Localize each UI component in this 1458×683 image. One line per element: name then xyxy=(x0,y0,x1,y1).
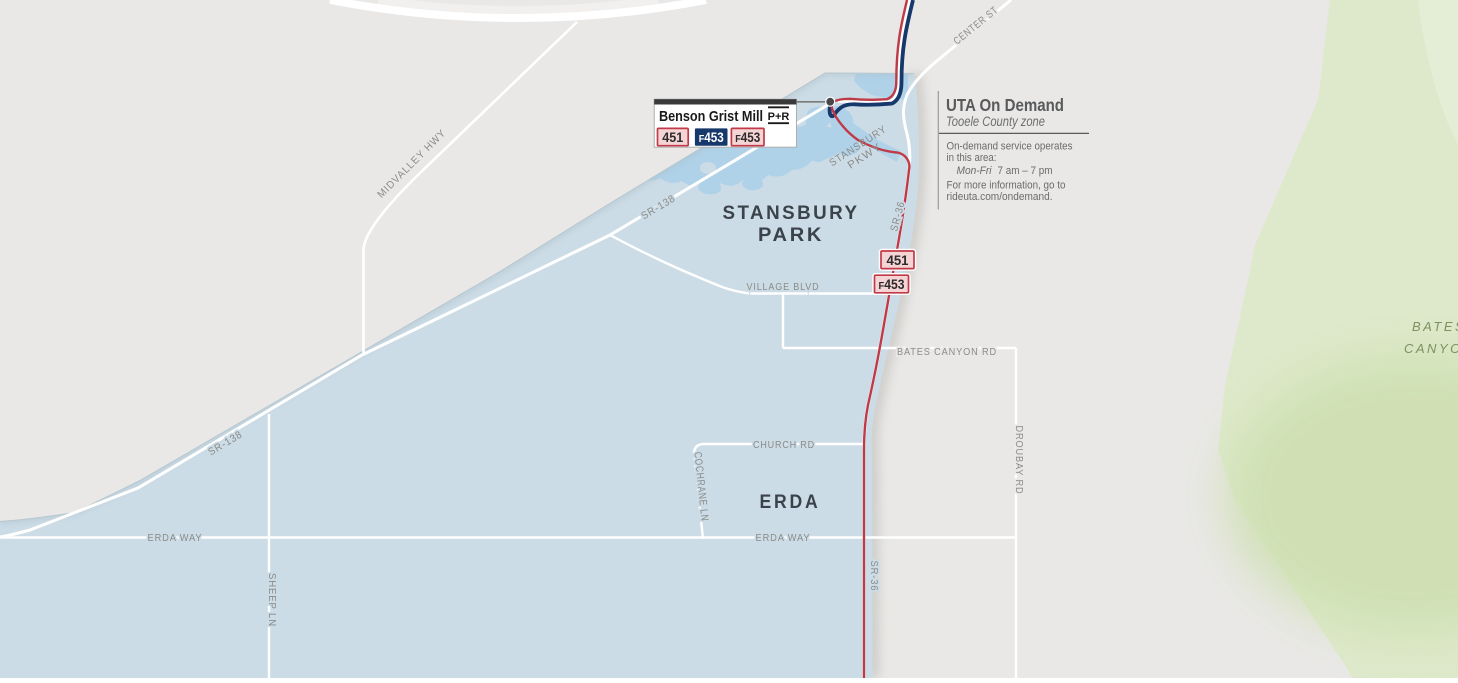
svg-text:F453: F453 xyxy=(699,130,724,145)
svg-text:Benson Grist Mill: Benson Grist Mill xyxy=(659,108,763,125)
svg-text:Tooele County zone: Tooele County zone xyxy=(946,113,1045,129)
svg-text:Mon-Fri: Mon-Fri xyxy=(957,165,993,177)
svg-text:STANSBURY: STANSBURY xyxy=(723,203,860,224)
svg-text:rideuta.com/ondemand.: rideuta.com/ondemand. xyxy=(947,191,1053,203)
svg-text:451: 451 xyxy=(662,130,683,145)
svg-text:F453: F453 xyxy=(879,277,905,292)
svg-text:ERDA WAY: ERDA WAY xyxy=(756,532,811,544)
svg-text:SHEEP LN: SHEEP LN xyxy=(266,573,278,627)
svg-text:F453: F453 xyxy=(735,130,760,145)
svg-text:On-demand service operates: On-demand service operates xyxy=(947,141,1074,153)
svg-text:CHURCH RD: CHURCH RD xyxy=(753,439,815,451)
svg-text:7 am – 7 pm: 7 am – 7 pm xyxy=(998,165,1053,177)
svg-text:CANYON: CANYON xyxy=(1404,341,1458,356)
svg-text:451: 451 xyxy=(887,253,909,268)
svg-text:ERDA: ERDA xyxy=(760,492,821,513)
svg-text:BATES: BATES xyxy=(1412,319,1458,334)
svg-text:For more information, go to: For more information, go to xyxy=(947,180,1066,192)
svg-text:VILLAGE BLVD: VILLAGE BLVD xyxy=(747,281,820,293)
svg-text:UTA On Demand: UTA On Demand xyxy=(946,95,1064,115)
svg-text:ERDA WAY: ERDA WAY xyxy=(148,532,203,544)
svg-text:DROUBAY RD: DROUBAY RD xyxy=(1013,426,1025,495)
svg-text:in this area:: in this area: xyxy=(947,152,997,164)
svg-text:BATES CANYON RD: BATES CANYON RD xyxy=(897,346,997,358)
svg-text:SR-36: SR-36 xyxy=(868,561,880,592)
svg-text:P+R: P+R xyxy=(768,111,790,123)
svg-text:PARK: PARK xyxy=(758,225,824,246)
